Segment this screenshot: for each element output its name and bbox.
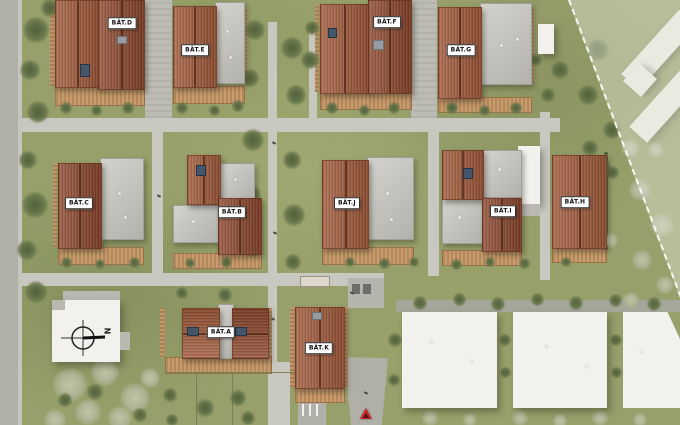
shrub — [388, 374, 400, 386]
building-bat-i-flat-roof-ne — [482, 150, 522, 198]
shrub — [531, 293, 544, 306]
parking-stripe — [302, 404, 304, 416]
building-bat-j-flat-roof — [367, 157, 414, 240]
solar-panel — [463, 168, 473, 179]
shrub — [359, 105, 370, 116]
roof-vent — [192, 220, 195, 223]
shrub — [553, 414, 567, 425]
building-bat-i-flat-roof-sw — [442, 198, 484, 244]
roof-vent — [516, 38, 519, 41]
roof-vent — [585, 365, 588, 368]
shrub — [451, 259, 462, 270]
tree — [245, 20, 265, 40]
tree — [25, 281, 47, 303]
shrub — [133, 408, 147, 422]
building-bat-e-flat-roof — [215, 2, 245, 84]
building-bat-c-flat-roof — [100, 158, 144, 240]
shrub — [647, 297, 661, 311]
tree — [87, 384, 103, 400]
building-bat-b-flat-roof-sw — [173, 205, 219, 243]
neighbor-building-north-small — [538, 24, 554, 54]
neighbor-building-south-1 — [402, 312, 497, 408]
building-label-bat-d: BÂT.D — [108, 17, 137, 29]
solar-panel — [80, 64, 90, 77]
tree — [27, 101, 49, 123]
street-west — [0, 0, 18, 425]
shrub — [166, 414, 178, 425]
shrub — [606, 166, 619, 179]
building-label-bat-c: BÂT.C — [65, 197, 93, 209]
building-label-bat-j: BÂT.J — [334, 197, 360, 209]
solar-panel — [235, 327, 247, 336]
roof-vent — [229, 56, 232, 59]
building-label-bat-h: BÂT.H — [561, 196, 590, 208]
building-bat-d-roof — [98, 0, 145, 90]
tree — [242, 129, 264, 151]
building-bat-f-roof-west — [320, 4, 370, 94]
tree — [19, 151, 37, 169]
shrub — [232, 100, 244, 112]
shrub — [176, 102, 188, 114]
building-label-bat-i: BÂT.I — [490, 205, 516, 217]
fence — [315, 4, 319, 92]
solar-panel — [196, 165, 206, 176]
shrub — [453, 293, 466, 306]
shrub — [463, 413, 477, 425]
shrub — [611, 367, 622, 378]
tree — [648, 142, 664, 158]
building-label-bat-b: BÂT.B — [218, 206, 246, 218]
tree — [108, 406, 132, 425]
parking-stripe — [309, 404, 311, 416]
tree — [196, 399, 214, 417]
neighbor-roof-wing — [120, 332, 130, 350]
utility-bin — [363, 284, 371, 294]
garden-plot-line — [196, 372, 197, 425]
neighbor-building-south-3 — [623, 312, 680, 408]
tree — [592, 410, 608, 425]
tree — [551, 61, 569, 79]
shrub — [413, 296, 427, 310]
shrub — [241, 411, 255, 425]
tree — [286, 85, 306, 105]
tree — [578, 85, 598, 105]
shrub — [122, 102, 134, 114]
shrub — [609, 294, 622, 307]
shrub — [633, 413, 647, 425]
tree — [44, 409, 66, 425]
shrub — [561, 257, 571, 267]
path-mid-west — [152, 118, 163, 276]
solar-panel — [328, 28, 337, 38]
site-plan: N BÂT.D BÂT.E BÂT.F BÂT.G BÂT.C BÂT.B BÂ… — [0, 0, 680, 425]
tree — [582, 140, 598, 156]
roof-vent — [498, 168, 501, 171]
shrub — [176, 287, 188, 299]
shrub — [379, 258, 390, 269]
shrub — [326, 102, 338, 114]
tree — [285, 254, 301, 270]
tree — [22, 192, 48, 218]
walkway-north — [22, 118, 560, 132]
shrub — [485, 257, 495, 267]
compass-icon — [59, 318, 119, 358]
roof-vent — [390, 218, 393, 221]
path-east — [540, 112, 550, 280]
building-label-bat-a: BÂT.A — [207, 326, 235, 338]
roof-vent — [118, 192, 121, 195]
deck-bat-j — [322, 247, 414, 265]
courtyard-f-g — [411, 0, 437, 118]
fence — [160, 308, 165, 357]
bike-shelter — [300, 276, 330, 287]
shrub — [305, 21, 319, 35]
tree — [656, 276, 674, 294]
shrub — [209, 105, 220, 116]
courtyard-d-e — [145, 0, 172, 118]
shrub — [58, 393, 72, 407]
shrub — [61, 257, 72, 268]
shrub — [519, 258, 530, 269]
building-bat-b-roof-north — [187, 155, 221, 205]
tree — [283, 151, 301, 169]
shrub — [569, 296, 583, 310]
building-label-bat-f: BÂT.F — [373, 16, 401, 28]
solar-panel — [187, 327, 199, 336]
roof-vent — [386, 192, 389, 195]
tree — [301, 51, 319, 69]
roof-vent — [640, 350, 643, 353]
roof-hatch — [312, 312, 322, 320]
shrub — [491, 297, 505, 311]
building-label-bat-k: BÂT.K — [305, 342, 333, 354]
tree — [17, 240, 37, 260]
tree — [512, 410, 528, 425]
neighbor-roof-notch — [52, 300, 65, 310]
tree — [422, 410, 438, 425]
fence — [53, 163, 57, 247]
tree — [75, 399, 101, 425]
building-label-bat-g: BÂT.G — [447, 44, 476, 56]
shrub — [409, 257, 419, 267]
shrub — [446, 102, 458, 114]
tree — [281, 37, 303, 59]
entrance-marker-inner — [363, 413, 369, 418]
tree — [632, 250, 652, 270]
shrub — [541, 88, 555, 102]
shrub — [345, 257, 355, 267]
tree — [283, 204, 305, 226]
building-bat-b-flat-roof-ne — [220, 163, 255, 199]
roof-vent — [430, 340, 433, 343]
compass-north-label: N — [103, 328, 112, 335]
shrub — [610, 334, 622, 346]
shrub — [500, 367, 511, 378]
tree — [20, 60, 40, 80]
tree — [91, 358, 119, 386]
shrub — [221, 257, 232, 268]
tree — [230, 390, 246, 406]
shrub — [91, 105, 102, 116]
garden-plot-line — [165, 372, 296, 373]
tree — [623, 292, 639, 308]
roof-vent — [124, 216, 127, 219]
parking-stripe — [316, 404, 318, 416]
building-label-bat-e: BÂT.E — [181, 44, 209, 56]
shrub — [479, 105, 490, 116]
roof-vent — [458, 216, 461, 219]
tree — [23, 17, 49, 43]
neighbor-building-south-2 — [513, 312, 607, 408]
shrub — [388, 333, 402, 347]
roof-vent — [470, 360, 473, 363]
shrub — [510, 102, 522, 114]
shrub — [60, 102, 72, 114]
roof-vent — [500, 44, 503, 47]
roof-hatch — [373, 40, 384, 50]
shrub — [129, 257, 140, 268]
shrub — [499, 334, 511, 346]
shrub — [163, 388, 177, 402]
shrub — [388, 102, 400, 114]
path-mid-east — [428, 118, 439, 276]
roof-vent — [545, 345, 548, 348]
tree — [140, 368, 160, 388]
roof-vent — [226, 30, 229, 33]
shrub — [185, 258, 195, 268]
shrub — [218, 288, 232, 302]
shrub — [95, 259, 105, 269]
deck-bat-k — [295, 387, 345, 403]
roof-vent — [234, 178, 237, 181]
building-bat-d-roof-west — [55, 0, 101, 88]
building-bat-g-flat-roof — [480, 3, 532, 85]
roof-hatch — [117, 36, 127, 44]
